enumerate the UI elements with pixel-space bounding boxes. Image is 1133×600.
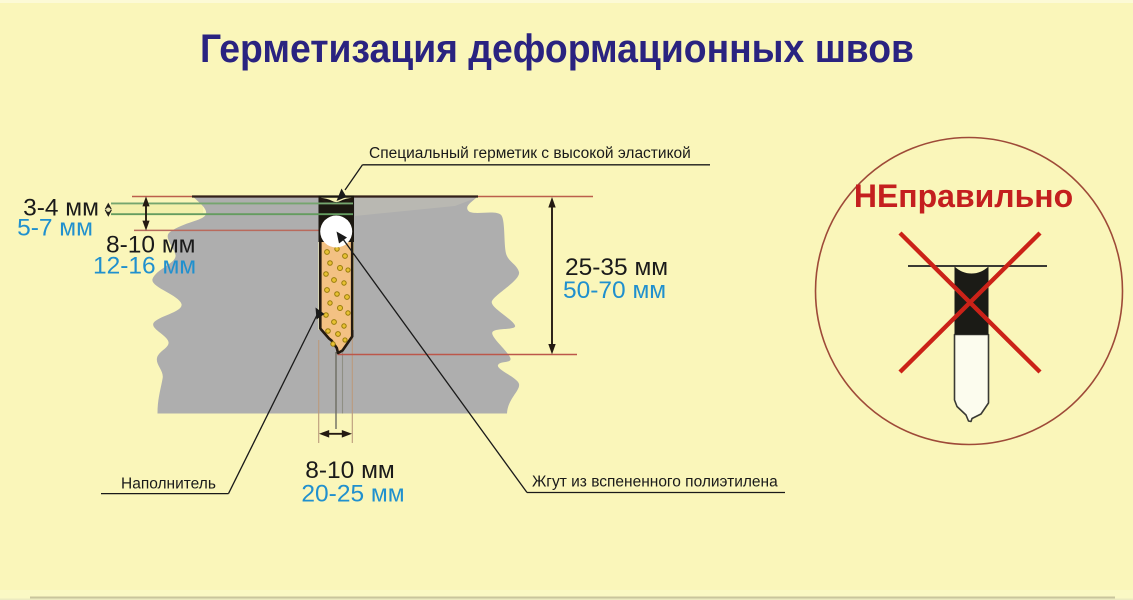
svg-text:50-70 мм: 50-70 мм	[563, 277, 666, 304]
svg-text:Жгут из вспененного полиэтилен: Жгут из вспененного полиэтилена	[532, 474, 778, 491]
svg-text:НЕправильно: НЕправильно	[854, 178, 1073, 214]
svg-text:5-7 мм: 5-7 мм	[17, 215, 93, 242]
svg-text:Специальный герметик с высокой: Специальный герметик с высокой эластикой	[369, 145, 691, 162]
svg-text:12-16 мм: 12-16 мм	[93, 253, 196, 280]
svg-text:Наполнитель: Наполнитель	[121, 476, 216, 493]
svg-text:Герметизация деформационных шв: Герметизация деформационных швов	[200, 27, 914, 71]
svg-text:20-25 мм: 20-25 мм	[301, 481, 404, 508]
